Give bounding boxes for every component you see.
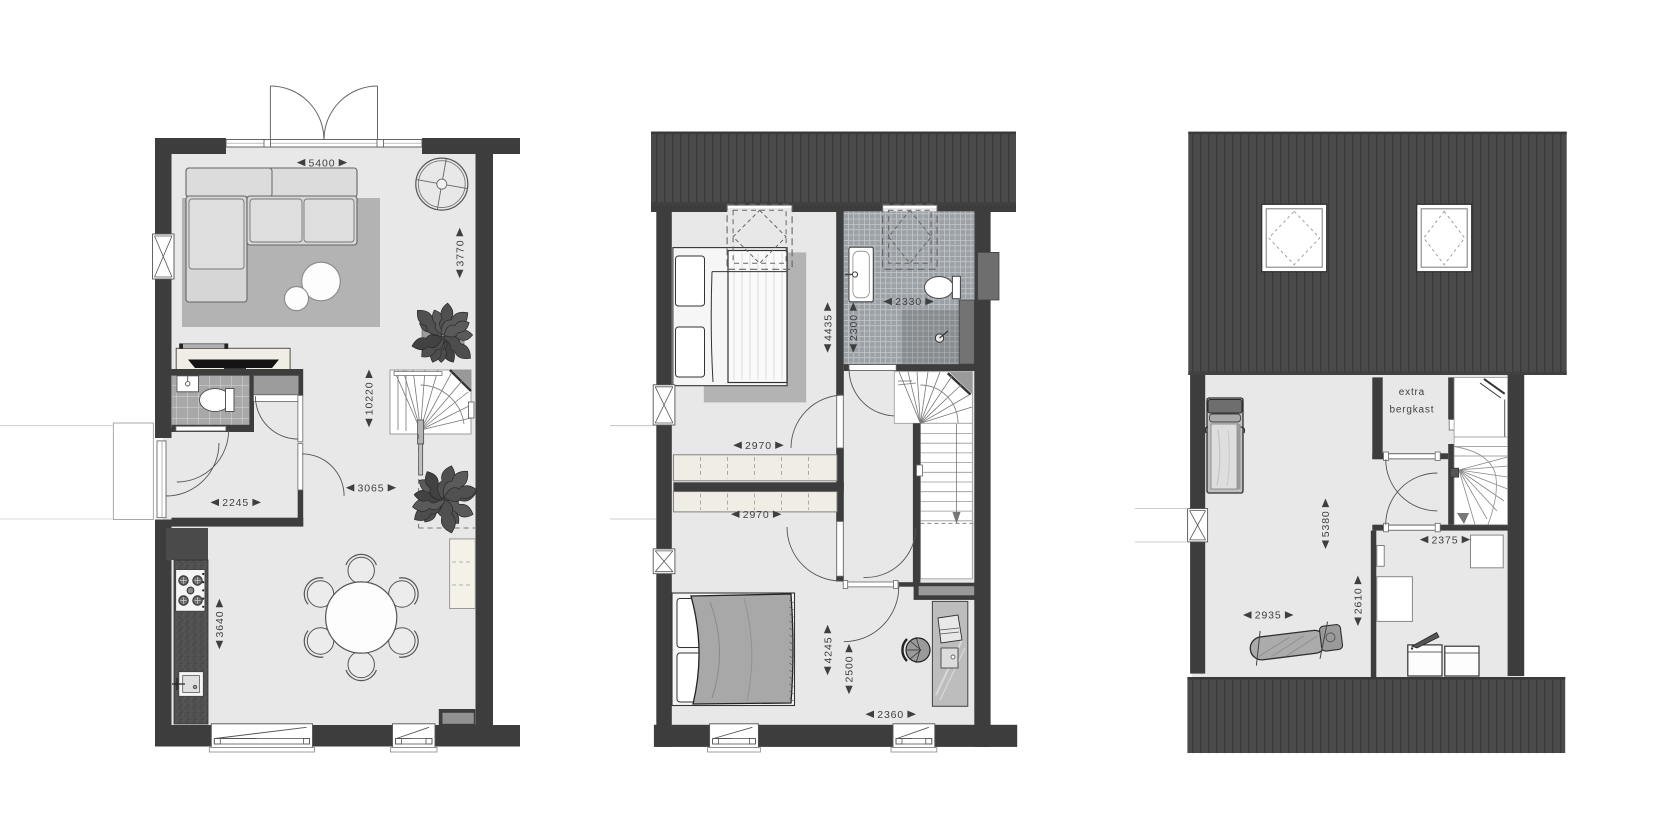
- svg-text:2970: 2970: [743, 509, 770, 521]
- svg-text:2375: 2375: [1432, 534, 1459, 546]
- svg-text:10220: 10220: [364, 382, 376, 416]
- svg-text:2330: 2330: [895, 296, 922, 308]
- svg-text:2360: 2360: [877, 709, 904, 721]
- svg-text:2500: 2500: [844, 656, 856, 683]
- svg-text:extra: extra: [1399, 387, 1425, 398]
- svg-text:5380: 5380: [1320, 510, 1332, 537]
- svg-text:2935: 2935: [1255, 610, 1282, 622]
- svg-text:bergkast: bergkast: [1390, 405, 1435, 416]
- svg-text:2245: 2245: [222, 497, 249, 509]
- svg-text:2970: 2970: [745, 440, 772, 452]
- svg-text:3770: 3770: [454, 240, 466, 267]
- svg-text:3065: 3065: [358, 483, 385, 495]
- svg-text:2300: 2300: [848, 314, 860, 341]
- svg-text:2610: 2610: [1353, 587, 1365, 614]
- svg-text:4435: 4435: [822, 314, 834, 341]
- svg-text:5400: 5400: [309, 157, 336, 169]
- svg-text:4245: 4245: [822, 637, 834, 664]
- svg-text:3640: 3640: [214, 611, 226, 638]
